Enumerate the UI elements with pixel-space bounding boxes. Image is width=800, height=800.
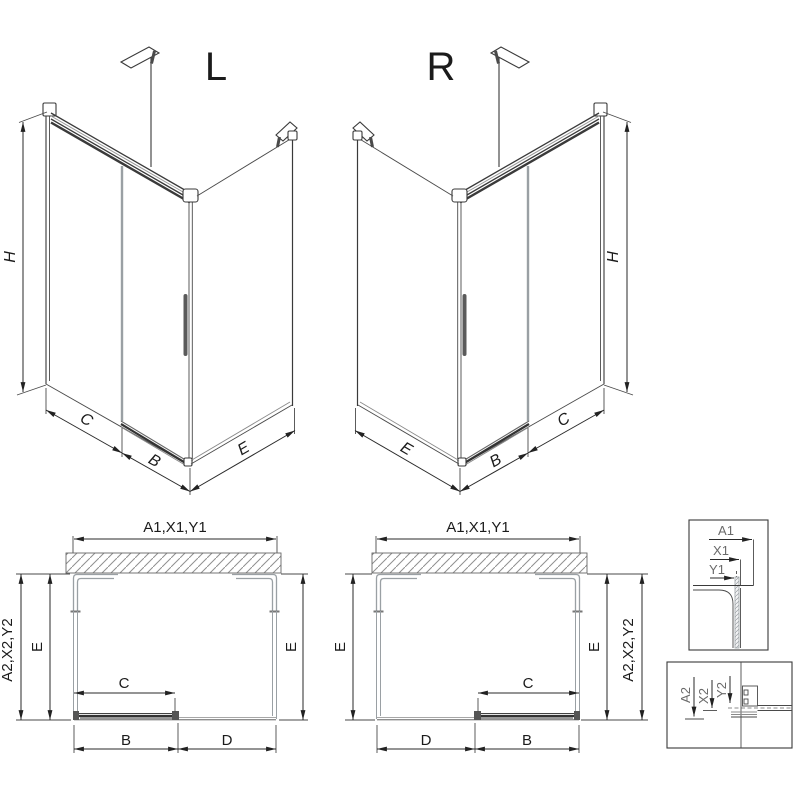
variant-label-left: L: [205, 45, 227, 89]
dim-label-c: C: [119, 675, 130, 692]
variant-label-right: R: [427, 45, 456, 89]
dim-label-e-right: E: [283, 642, 300, 652]
dim-label-b: B: [121, 732, 131, 749]
technical-drawing: L: [0, 0, 800, 800]
dim-label-c: C: [523, 675, 534, 692]
dim-label-b: B: [522, 732, 532, 749]
rail-end-cap: [172, 711, 179, 720]
rail-end-cap: [73, 711, 79, 720]
wall-section-hatch: [66, 553, 281, 573]
detail-label-a1: A1: [718, 523, 734, 538]
dim-label-h: H: [2, 251, 19, 263]
dim-label-e-right: E: [586, 642, 603, 652]
dim-label-h: H: [605, 251, 622, 263]
dim-label-d: D: [222, 732, 233, 749]
dim-label-e-left: E: [332, 642, 349, 652]
rail-end-cap: [474, 711, 481, 720]
detail-view-bottom: A2 X2 Y2: [667, 662, 792, 748]
dim-label-d: D: [421, 732, 432, 749]
dim-label-e-left: E: [29, 642, 46, 652]
detail-label-x1: X1: [713, 543, 729, 558]
detail-label-a2: A2: [678, 687, 693, 703]
dim-label-a1: A1,X1,Y1: [446, 519, 509, 536]
detail-label-x2: X2: [696, 688, 711, 704]
detail-label-y1: Y1: [709, 562, 725, 577]
dim-label-a2: A2,X2,Y2: [0, 618, 16, 681]
drawing-canvas: L: [0, 0, 800, 800]
dim-label-a1: A1,X1,Y1: [143, 519, 206, 536]
detail-label-y2: Y2: [714, 682, 729, 698]
wall-section-hatch: [372, 553, 587, 573]
detail-view-top: A1 X1 Y1: [689, 520, 768, 650]
rail-end-cap: [574, 711, 580, 720]
dim-label-a2: A2,X2,Y2: [620, 618, 637, 681]
